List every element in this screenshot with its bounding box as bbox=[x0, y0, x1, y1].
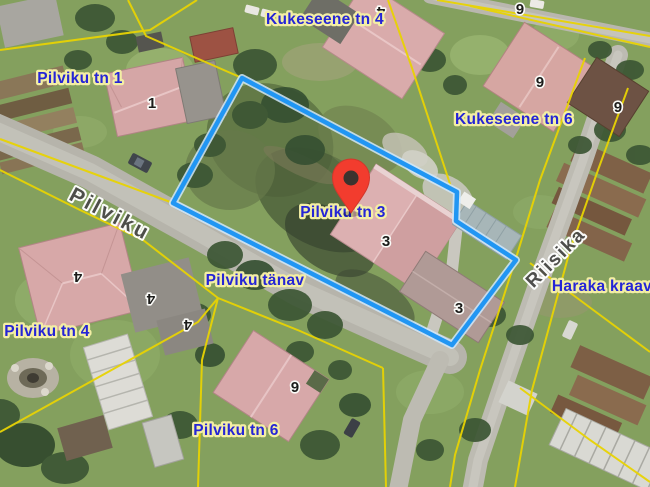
address-label-pilviku-tn-6: Pilviku tn 6 bbox=[193, 422, 279, 439]
aerial-map-canvas[interactable]: Pilviku Riisika 1 4 6 6 6 3 3 4 4 4 6 Ku… bbox=[0, 0, 650, 487]
building-number: 1 bbox=[148, 95, 156, 112]
map-viewport[interactable]: Pilviku Riisika 1 4 6 6 6 3 3 4 4 4 6 Ku… bbox=[0, 0, 650, 487]
building-number: 4 bbox=[146, 290, 155, 307]
address-label-pilviku-tn-1: Pilviku tn 1 bbox=[37, 70, 123, 87]
address-label-pilviku-tn-3: Pilviku tn 3 bbox=[300, 204, 386, 221]
address-label-pilviku-tanav: Pilviku tänav bbox=[206, 272, 305, 289]
address-label-kukeseene-tn-4: Kukeseene tn 4 bbox=[266, 11, 384, 28]
address-label-pilviku-tn-4: Pilviku tn 4 bbox=[4, 323, 90, 340]
building-number: 4 bbox=[73, 268, 82, 285]
building-number: 6 bbox=[536, 73, 544, 90]
building-number: 3 bbox=[455, 300, 463, 317]
stone-pond bbox=[7, 358, 59, 398]
building-number: 3 bbox=[382, 233, 390, 250]
building-number: 4 bbox=[183, 316, 192, 333]
building-number: 6 bbox=[291, 378, 299, 395]
address-label-haraka-kraav: Haraka kraav bbox=[552, 278, 650, 295]
building-number: 6 bbox=[516, 0, 524, 17]
address-label-kukeseene-tn-6: Kukeseene tn 6 bbox=[455, 111, 573, 128]
building-number: 6 bbox=[614, 98, 622, 115]
